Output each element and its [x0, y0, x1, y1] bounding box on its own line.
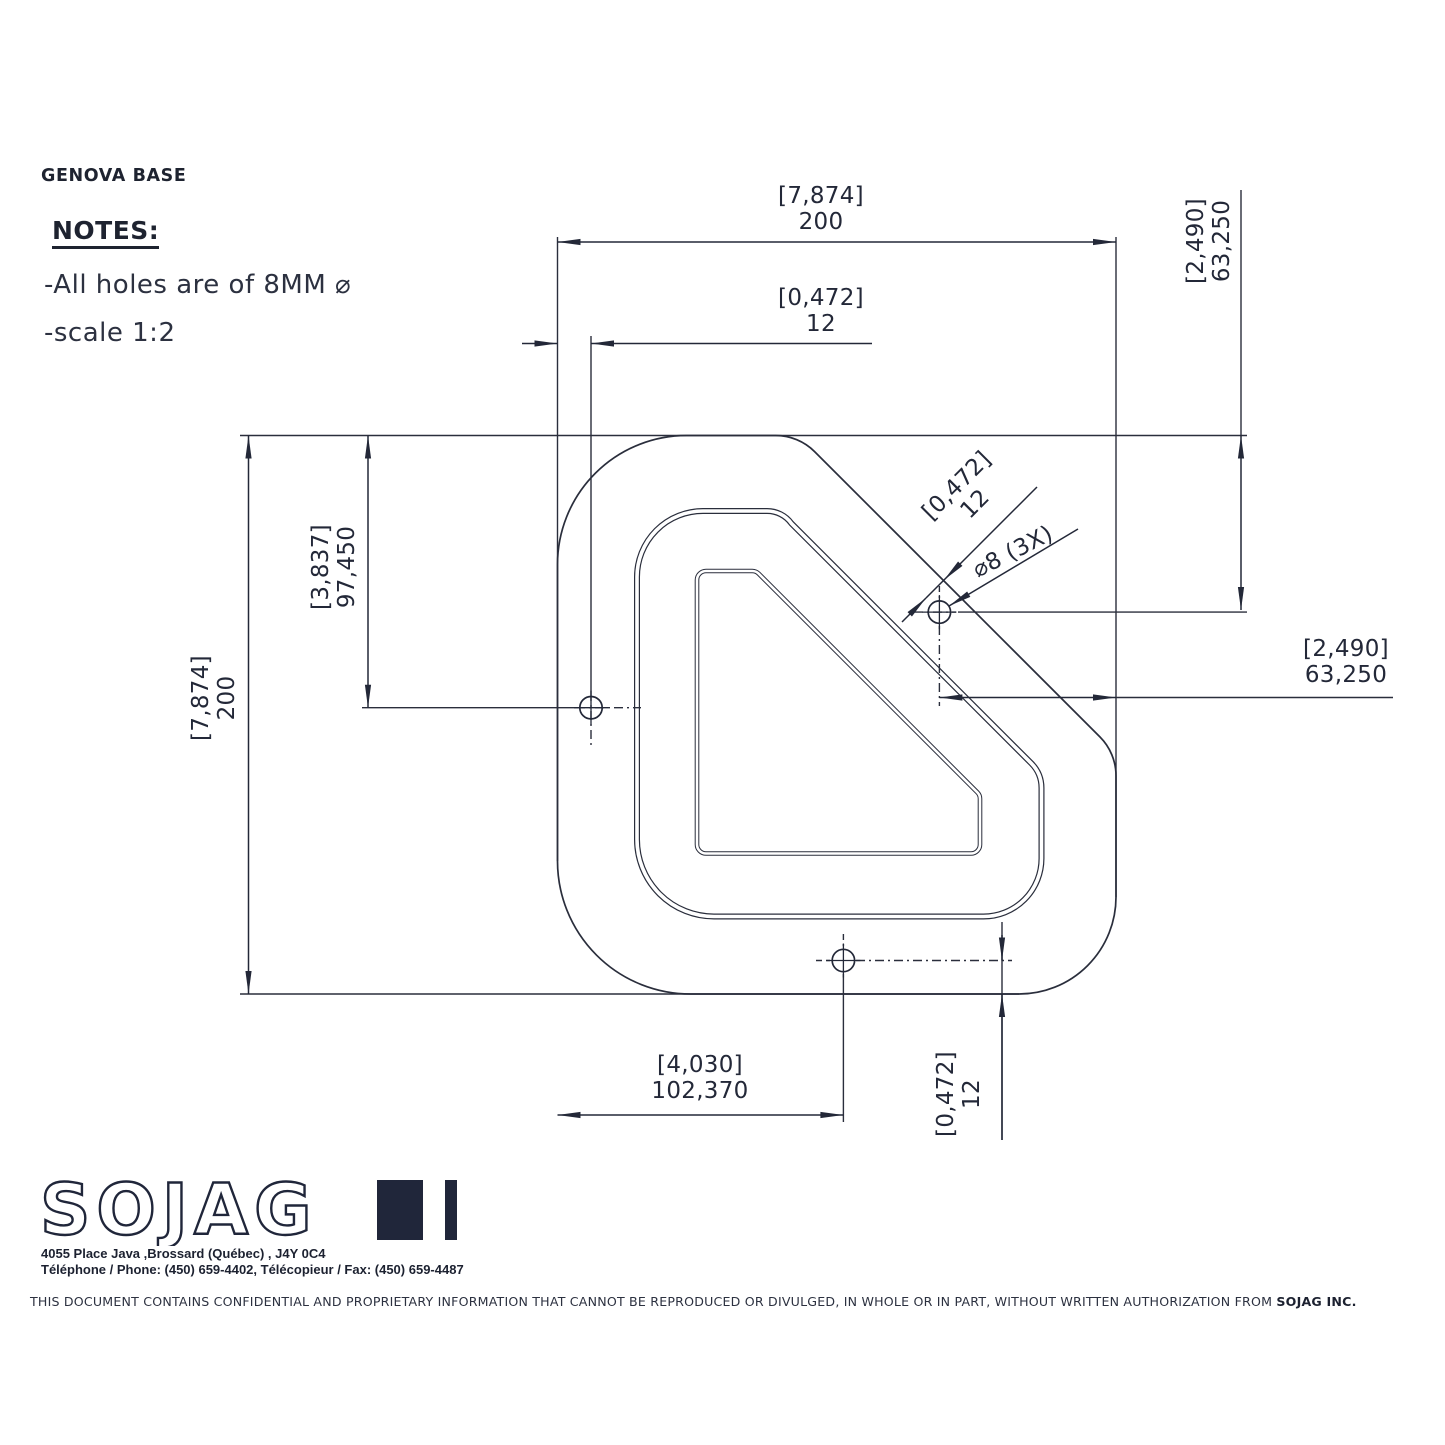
- dim-value: 200: [799, 209, 844, 235]
- sojag-logo-text: SOJAG: [40, 1176, 318, 1246]
- dim-bracket: [4,030]: [657, 1052, 743, 1078]
- confidentiality-company: SOJAG INC.: [1276, 1294, 1356, 1309]
- dim-bracket: [7,874]: [188, 655, 214, 741]
- note-holes: -All holes are of 8MM ⌀: [44, 270, 351, 300]
- part-geometry: [558, 435, 1117, 994]
- company-address: 4055 Place Java ,Brossard (Québec) , J4Y…: [41, 1246, 464, 1278]
- part-plateau-edge-inner: [697, 571, 980, 854]
- dim-bracket: [0,472]: [933, 1051, 959, 1137]
- logo-bar-mark: [445, 1180, 457, 1240]
- part-outer-outline: [558, 435, 1117, 994]
- dim-bracket: [2,490]: [1183, 198, 1209, 284]
- page-title: GENOVA BASE: [41, 166, 186, 186]
- dim-label-bottom-width: [4,030] 102,370: [651, 1052, 748, 1104]
- confidentiality-notice: THIS DOCUMENT CONTAINS CONFIDENTIAL AND …: [30, 1294, 1410, 1309]
- dim-value: 12: [806, 311, 836, 337]
- holes: [574, 595, 956, 977]
- dim-line-diag-offset-a: [902, 598, 926, 622]
- confidentiality-text: THIS DOCUMENT CONTAINS CONFIDENTIAL AND …: [30, 1294, 1276, 1309]
- dim-line-diag-offset-mid: [926, 580, 944, 598]
- dim-label-left-hole-vertical: [3,837] 97,450: [308, 524, 360, 610]
- dim-value: 102,370: [651, 1078, 748, 1104]
- dim-value: 63,250: [1305, 662, 1387, 688]
- notes-heading: NOTES:: [52, 216, 159, 249]
- drawing-sheet: GENOVA BASE NOTES: -All holes are of 8MM…: [0, 0, 1445, 1445]
- part-plateau-edge-outer: [697, 571, 980, 854]
- company-logo: SOJAG: [38, 1176, 478, 1250]
- dim-value: 63,250: [1209, 200, 1235, 282]
- dim-label-top-width: [7,874] 200: [778, 183, 864, 235]
- dimension-lines: [249, 242, 1242, 1140]
- dim-label-bottom-offset: [0,472] 12: [933, 1051, 985, 1137]
- dim-label-top-offset: [0,472] 12: [778, 285, 864, 337]
- dim-bracket: [7,874]: [778, 183, 864, 209]
- dim-bracket: [0,472]: [778, 285, 864, 311]
- dim-bracket: [3,837]: [308, 524, 334, 610]
- dim-label-right-top-vertical: [2,490] 63,250: [1183, 198, 1235, 284]
- dim-label-right-horizontal: [2,490] 63,250: [1303, 636, 1389, 688]
- dim-value: 12: [959, 1079, 985, 1109]
- logo-square-mark: [377, 1180, 423, 1240]
- address-line1: 4055 Place Java ,Brossard (Québec) , J4Y…: [41, 1246, 325, 1261]
- sojag-logo-graphic: SOJAG: [38, 1176, 478, 1246]
- note-scale: -scale 1:2: [44, 318, 175, 348]
- address-line2: Téléphone / Phone: (450) 659-4402, Téléc…: [41, 1262, 464, 1277]
- dim-value: 200: [214, 676, 240, 721]
- dim-bracket: [2,490]: [1303, 636, 1389, 662]
- dim-value: 97,450: [334, 526, 360, 608]
- dim-label-left-height: [7,874] 200: [188, 655, 240, 741]
